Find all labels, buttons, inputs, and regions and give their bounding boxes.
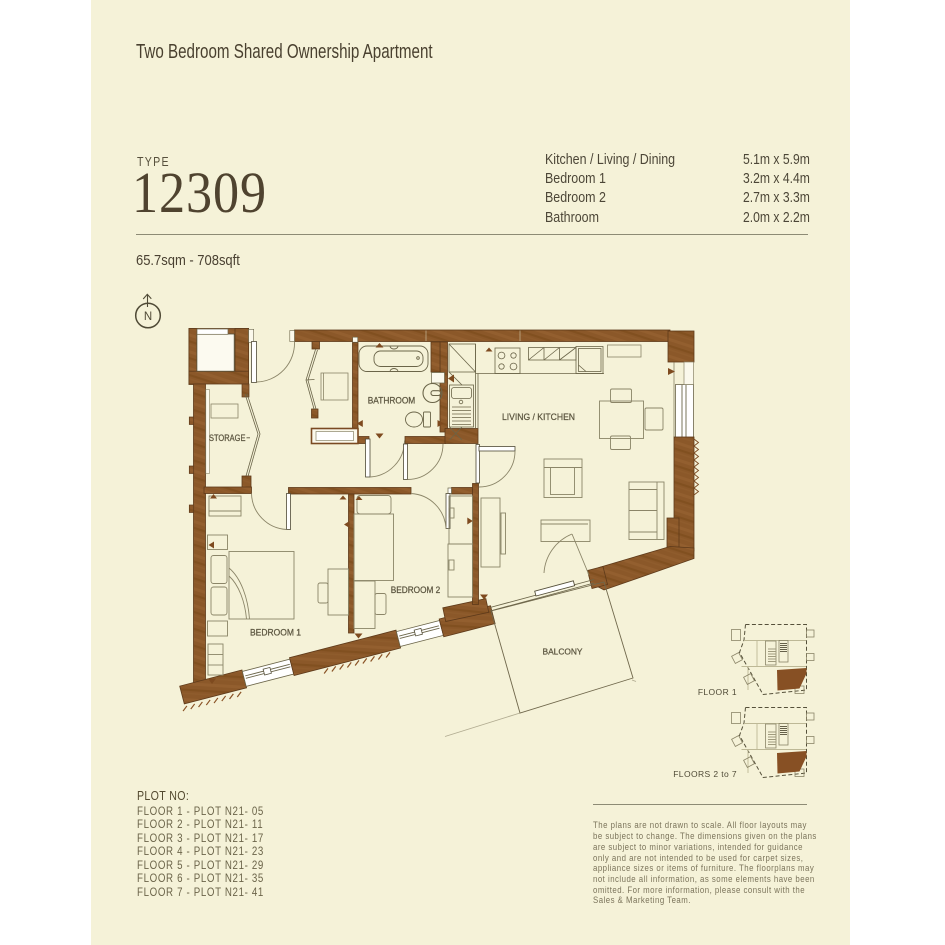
svg-text:LIVING / KITCHEN: LIVING / KITCHEN bbox=[502, 412, 575, 422]
svg-text:STORAGE: STORAGE bbox=[209, 433, 246, 443]
svg-text:BATHROOM: BATHROOM bbox=[368, 395, 416, 405]
svg-text:N: N bbox=[144, 311, 152, 323]
svg-text:BEDROOM 2: BEDROOM 2 bbox=[391, 585, 441, 595]
svg-text:BEDROOM 1: BEDROOM 1 bbox=[250, 628, 301, 638]
svg-text:BALCONY: BALCONY bbox=[543, 647, 583, 657]
